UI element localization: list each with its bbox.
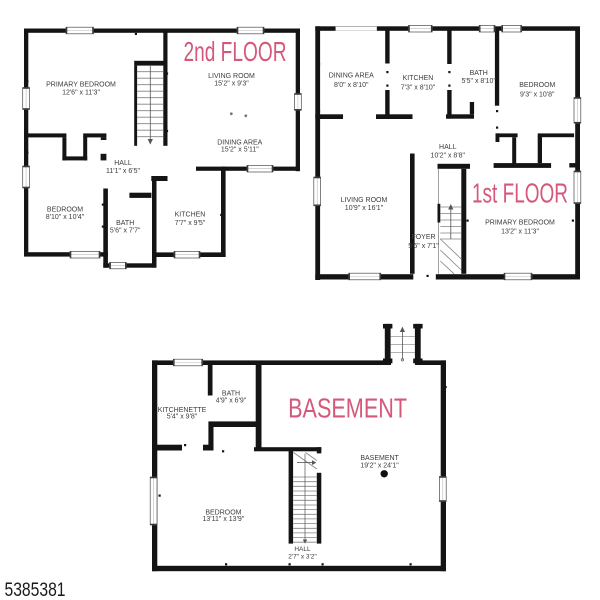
svg-text:2nd FLOOR: 2nd FLOOR bbox=[184, 36, 287, 67]
svg-text:5'6" x 7'1": 5'6" x 7'1" bbox=[408, 243, 439, 250]
svg-text:BATH: BATH bbox=[222, 391, 240, 398]
svg-text:BATH: BATH bbox=[116, 220, 134, 227]
svg-text:1st FLOOR: 1st FLOOR bbox=[472, 178, 568, 209]
svg-text:LIVING ROOM: LIVING ROOM bbox=[208, 73, 255, 80]
svg-text:9'3" x 10'8": 9'3" x 10'8" bbox=[520, 91, 555, 98]
svg-text:15'2" x 5'11": 15'2" x 5'11" bbox=[221, 147, 259, 154]
svg-text:HALL: HALL bbox=[294, 546, 311, 553]
svg-text:LIVING ROOM: LIVING ROOM bbox=[341, 197, 388, 204]
svg-text:15'2" x 9'3": 15'2" x 9'3" bbox=[214, 80, 249, 87]
svg-text:FOYER: FOYER bbox=[411, 234, 435, 241]
svg-text:5385381: 5385381 bbox=[5, 579, 66, 600]
svg-text:11'1" x 6'5": 11'1" x 6'5" bbox=[106, 168, 140, 175]
svg-text:12'6" x 11'3": 12'6" x 11'3" bbox=[62, 90, 100, 97]
svg-text:PRIMARY BEDROOM: PRIMARY BEDROOM bbox=[46, 82, 116, 89]
svg-text:8'10" x 10'4": 8'10" x 10'4" bbox=[46, 214, 85, 221]
svg-text:DINING AREA: DINING AREA bbox=[329, 72, 374, 79]
svg-text:7'3" x 8'10": 7'3" x 8'10" bbox=[401, 84, 436, 91]
svg-text:5'4" x 9'8": 5'4" x 9'8" bbox=[167, 413, 198, 420]
svg-text:DINING AREA: DINING AREA bbox=[217, 140, 262, 147]
svg-text:2'7" x 3'2": 2'7" x 3'2" bbox=[288, 553, 317, 560]
svg-text:PRIMARY BEDROOM: PRIMARY BEDROOM bbox=[485, 219, 555, 226]
svg-text:HALL: HALL bbox=[114, 160, 132, 167]
svg-text:10'9" x 16'1": 10'9" x 16'1" bbox=[345, 205, 384, 212]
svg-text:5'5" x 8'10": 5'5" x 8'10" bbox=[461, 78, 496, 85]
svg-text:19'2" x 24'1": 19'2" x 24'1" bbox=[360, 462, 399, 469]
svg-text:13'11" x 13'9": 13'11" x 13'9" bbox=[203, 516, 245, 523]
svg-text:HALL: HALL bbox=[439, 144, 457, 151]
svg-text:KITCHEN: KITCHEN bbox=[175, 212, 206, 219]
svg-text:8'0" x 8'10": 8'0" x 8'10" bbox=[334, 82, 369, 89]
svg-text:BATH: BATH bbox=[470, 70, 488, 77]
svg-text:5'6" x 7'7": 5'6" x 7'7" bbox=[110, 227, 141, 234]
svg-text:BASEMENT: BASEMENT bbox=[288, 393, 407, 424]
svg-text:KITCHEN: KITCHEN bbox=[403, 75, 434, 82]
svg-text:13'2" x 11'3": 13'2" x 11'3" bbox=[501, 229, 539, 236]
svg-text:BEDROOM: BEDROOM bbox=[47, 207, 83, 214]
svg-text:BEDROOM: BEDROOM bbox=[519, 82, 555, 89]
svg-text:BASEMENT: BASEMENT bbox=[360, 455, 399, 462]
svg-text:10'2" x 8'8": 10'2" x 8'8" bbox=[431, 153, 466, 160]
svg-text:4'9" x 6'9": 4'9" x 6'9" bbox=[216, 398, 247, 405]
svg-text:7'7" x 9'5": 7'7" x 9'5" bbox=[175, 220, 206, 227]
